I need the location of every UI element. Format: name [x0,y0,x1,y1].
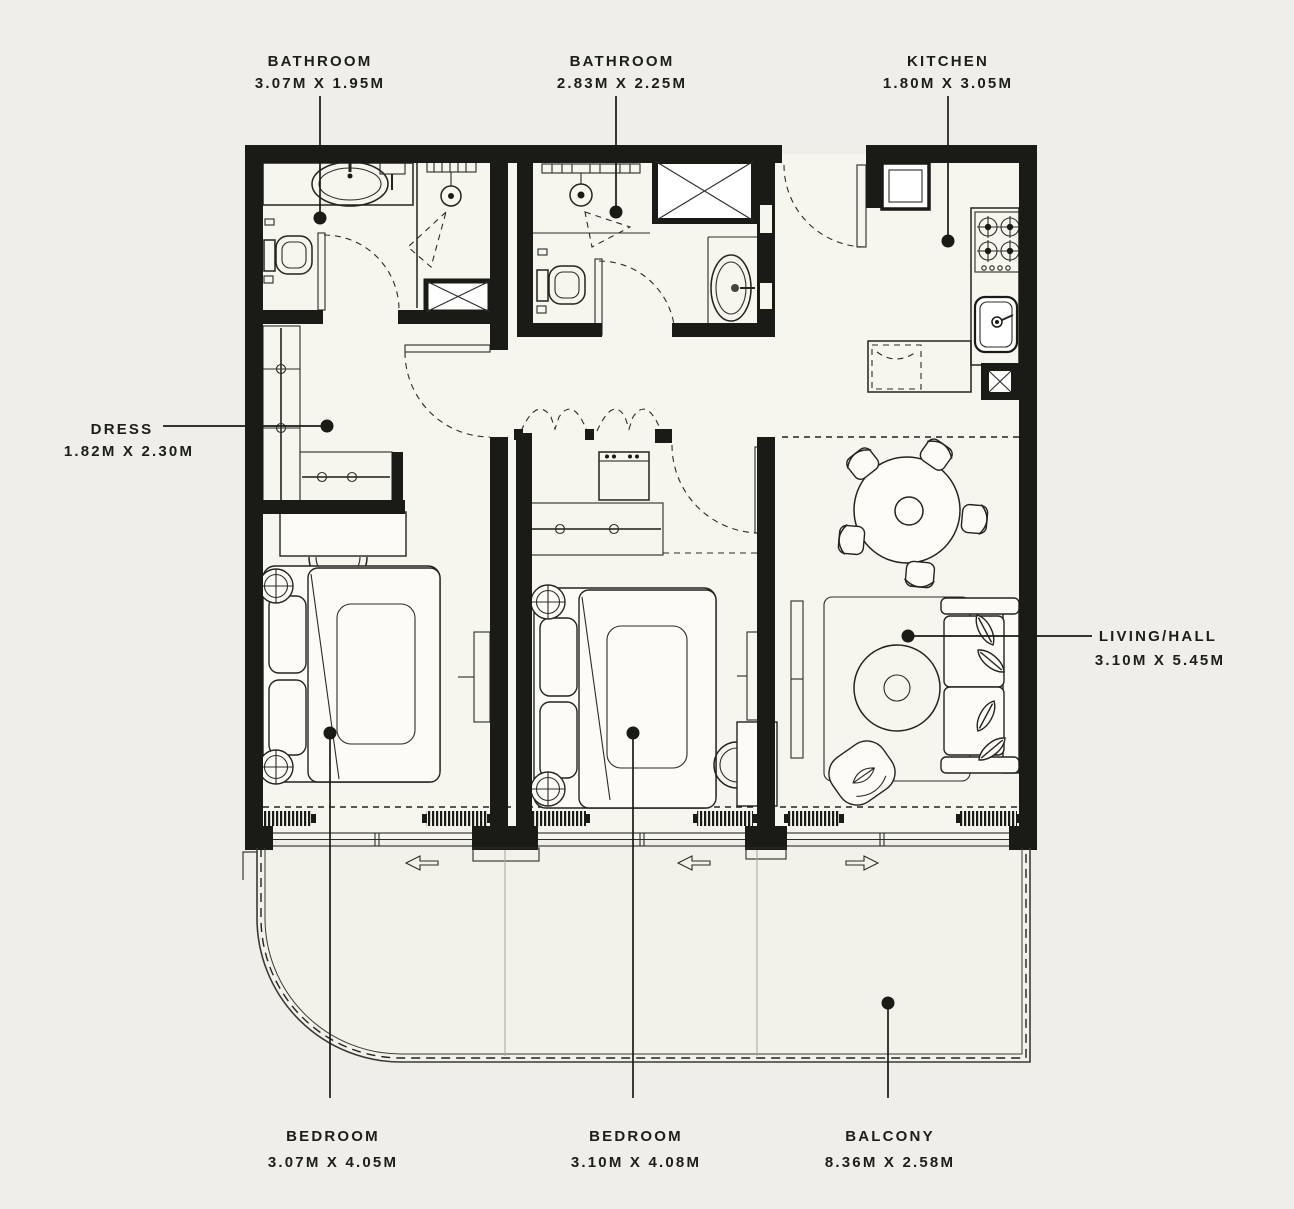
floor-plan-page: BATHROOM 3.07M X 1.95M BATHROOM 2.83M X … [0,0,1294,1209]
dining-chair-icon [838,524,866,556]
curtain-bar [422,811,492,826]
label-dress-size: 1.82M X 2.30M [64,443,194,460]
bed-icon [263,566,440,782]
curtain-bar [784,811,844,826]
label-kitchen-size: 1.80M X 3.05M [883,75,1013,92]
dining-chair-icon [961,503,989,535]
pillow-icon [269,680,306,755]
label-bathroom-1-size: 3.07M X 1.95M [255,75,385,92]
label-balcony-size: 8.36M X 2.58M [825,1154,955,1171]
label-dress: DRESS [91,421,154,438]
label-bedroom-2: BEDROOM [589,1128,683,1145]
pillow-icon [540,702,577,778]
pillow-icon [269,596,306,673]
nightstand-icon [531,585,565,619]
pillow-icon [540,618,577,696]
label-bedroom-1-size: 3.07M X 4.05M [268,1154,398,1171]
label-kitchen: KITCHEN [907,53,989,70]
nightstand-icon [259,750,293,784]
fridge-icon [882,163,929,209]
label-balcony: BALCONY [845,1128,935,1145]
label-living: LIVING/HALL [1099,628,1217,645]
label-bathroom-2-size: 2.83M X 2.25M [557,75,687,92]
sofa-icon [941,598,1019,773]
label-bathroom-2: BATHROOM [570,53,675,70]
kitchen-sink-icon [975,297,1017,352]
nightstand-icon [259,569,293,603]
bed-icon [534,588,716,808]
duct-shaft-icon [981,363,1019,400]
duct-shaft-icon [655,161,754,221]
dining-chair-icon [904,561,936,589]
label-bedroom-2-size: 3.10M X 4.08M [571,1154,701,1171]
duct-shaft-icon [426,281,490,312]
curtain-bar [956,811,1021,826]
label-bathroom-1: BATHROOM [268,53,373,70]
curtain-bar [693,811,757,826]
floor-plan-drawing: BATHROOM 3.07M X 1.95M BATHROOM 2.83M X … [0,0,1294,1209]
balcony-floor [257,848,1030,1062]
label-living-size: 3.10M X 5.45M [1095,652,1225,669]
label-bedroom-1: BEDROOM [286,1128,380,1145]
nightstand-icon [531,772,565,806]
